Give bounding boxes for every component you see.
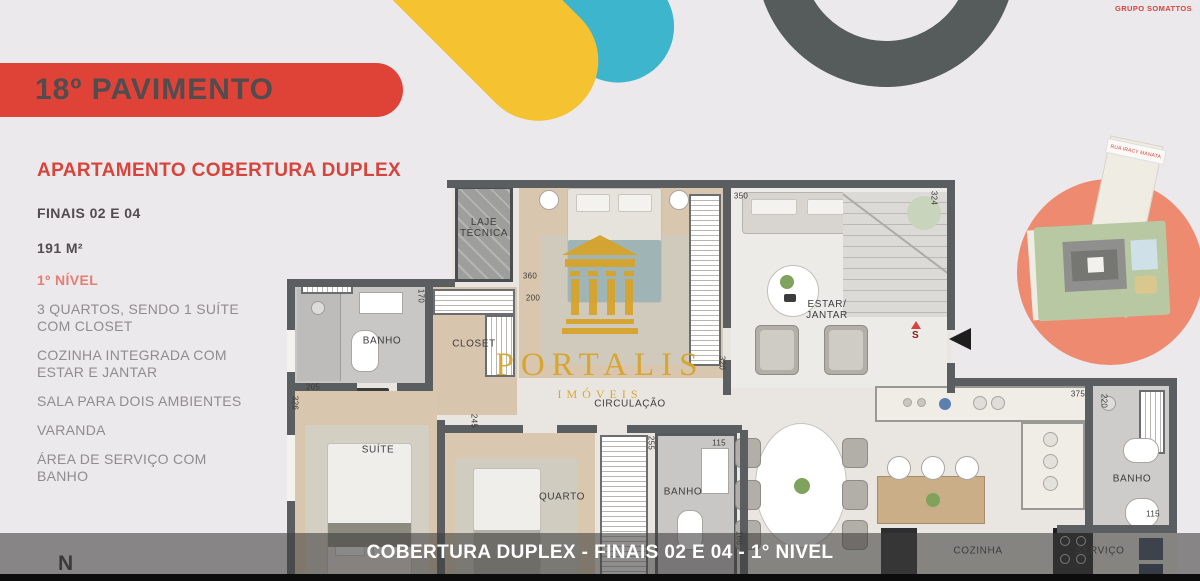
dimension-label: 205	[306, 383, 320, 392]
feature-item: SALA PARA DOIS AMBIENTES	[37, 393, 252, 410]
wall	[425, 287, 433, 391]
wall	[947, 180, 955, 330]
dimension-label: 360	[523, 272, 537, 281]
entry-arrow-icon	[949, 328, 971, 350]
window	[287, 330, 295, 372]
wardrobe	[689, 194, 721, 366]
wall	[447, 180, 955, 188]
dining-chair	[735, 438, 761, 468]
stairs-up-icon	[911, 321, 921, 329]
room-label-banho-meio: BANHO	[664, 487, 703, 498]
kitchen-counter	[875, 386, 1087, 422]
room-label-banho-suite: BANHO	[363, 336, 402, 347]
wall	[287, 279, 455, 287]
nightstand	[669, 190, 689, 210]
plan-caption: COBERTURA DUPLEX - FINAIS 02 E 04 - 1° N…	[0, 542, 1200, 564]
dimension-label: 245	[470, 414, 479, 428]
room-label-quarto: QUARTO	[539, 492, 585, 503]
watermark-brand: PORTALIS	[450, 347, 750, 384]
stool	[955, 456, 979, 480]
brand-label: GRUPO SOMATTOS	[1115, 4, 1192, 13]
floor-plan: LAJE TÉCNICA BANHO CLOSET SUÍTE QUARTO C…	[287, 180, 1185, 581]
wall	[1085, 378, 1093, 533]
dining-chair	[735, 480, 761, 510]
window	[287, 435, 295, 501]
banho-sink	[701, 448, 729, 494]
stool	[887, 456, 911, 480]
wall	[397, 383, 433, 391]
feature-item: 3 QUARTOS, SENDO 1 SUÍTE COM CLOSET	[37, 301, 252, 335]
feature-item: VARANDA	[37, 422, 252, 439]
wall	[1169, 378, 1177, 533]
dimension-label: 200	[526, 294, 540, 303]
room-label-banho-servico: BANHO	[1113, 474, 1152, 485]
dimension-label: 255	[647, 436, 656, 450]
dimension-label: 375	[1071, 390, 1085, 399]
room-label-estar-jantar: ESTAR/ JANTAR	[806, 299, 848, 321]
banho-sink	[359, 292, 403, 314]
dimension-label: 115	[712, 439, 726, 448]
area-label: 191 M²	[37, 240, 83, 256]
level-label: 1º NÍVEL	[37, 272, 98, 288]
wall	[723, 188, 731, 328]
dimension-label: 326	[291, 396, 300, 410]
dining-chair	[842, 438, 868, 468]
floor-banner: 18º PAVIMENTO	[0, 63, 403, 117]
dimension-label: 324	[930, 191, 939, 205]
armchair	[755, 325, 799, 375]
bottom-strip	[0, 574, 1200, 581]
street-sign-label: RUA IRACY MANATA	[1105, 138, 1167, 165]
kitchen-island	[877, 476, 985, 524]
stairs	[843, 192, 947, 317]
dimension-label: 350	[734, 192, 748, 201]
caption-band: COBERTURA DUPLEX - FINAIS 02 E 04 - 1° N…	[0, 533, 1200, 574]
dimension-label: 115	[1146, 510, 1160, 519]
wall	[557, 425, 597, 433]
shower	[297, 289, 341, 381]
finais-label: FINAIS 02 E 04	[37, 205, 141, 221]
watermark-tagline: IMÓVEIS	[450, 387, 750, 402]
dark-ring-shape	[756, 0, 1016, 87]
stairs-up-label: S	[912, 330, 919, 341]
feature-item: COZINHA INTEGRADA COM ESTAR E JANTAR	[37, 347, 252, 381]
dining-table	[755, 423, 847, 548]
dimension-label: 170	[417, 289, 426, 303]
page-title: 18º PAVIMENTO	[0, 73, 274, 107]
room-label-suite: SUÍTE	[362, 445, 394, 456]
apartment-title: APARTAMENTO COBERTURA DUPLEX	[37, 160, 401, 182]
armchair	[824, 325, 868, 375]
dining-chair	[842, 480, 868, 510]
stool	[921, 456, 945, 480]
wall	[287, 383, 357, 391]
wall	[1057, 525, 1169, 533]
nightstand	[539, 190, 559, 210]
dimension-label: 220	[1100, 394, 1109, 408]
kitchen-counter-return	[1021, 422, 1085, 510]
feature-item: ÁREA DE SERVIÇO COM BANHO	[37, 451, 252, 485]
wall	[627, 425, 742, 433]
closet-shelves	[433, 289, 515, 315]
temple-icon	[562, 235, 638, 335]
room-label-laje-tecnica: LAJE TÉCNICA	[460, 217, 508, 239]
banho-sink	[1123, 438, 1159, 463]
wall	[951, 378, 1177, 386]
wall	[445, 425, 523, 433]
compass-north-label: N	[58, 552, 73, 576]
